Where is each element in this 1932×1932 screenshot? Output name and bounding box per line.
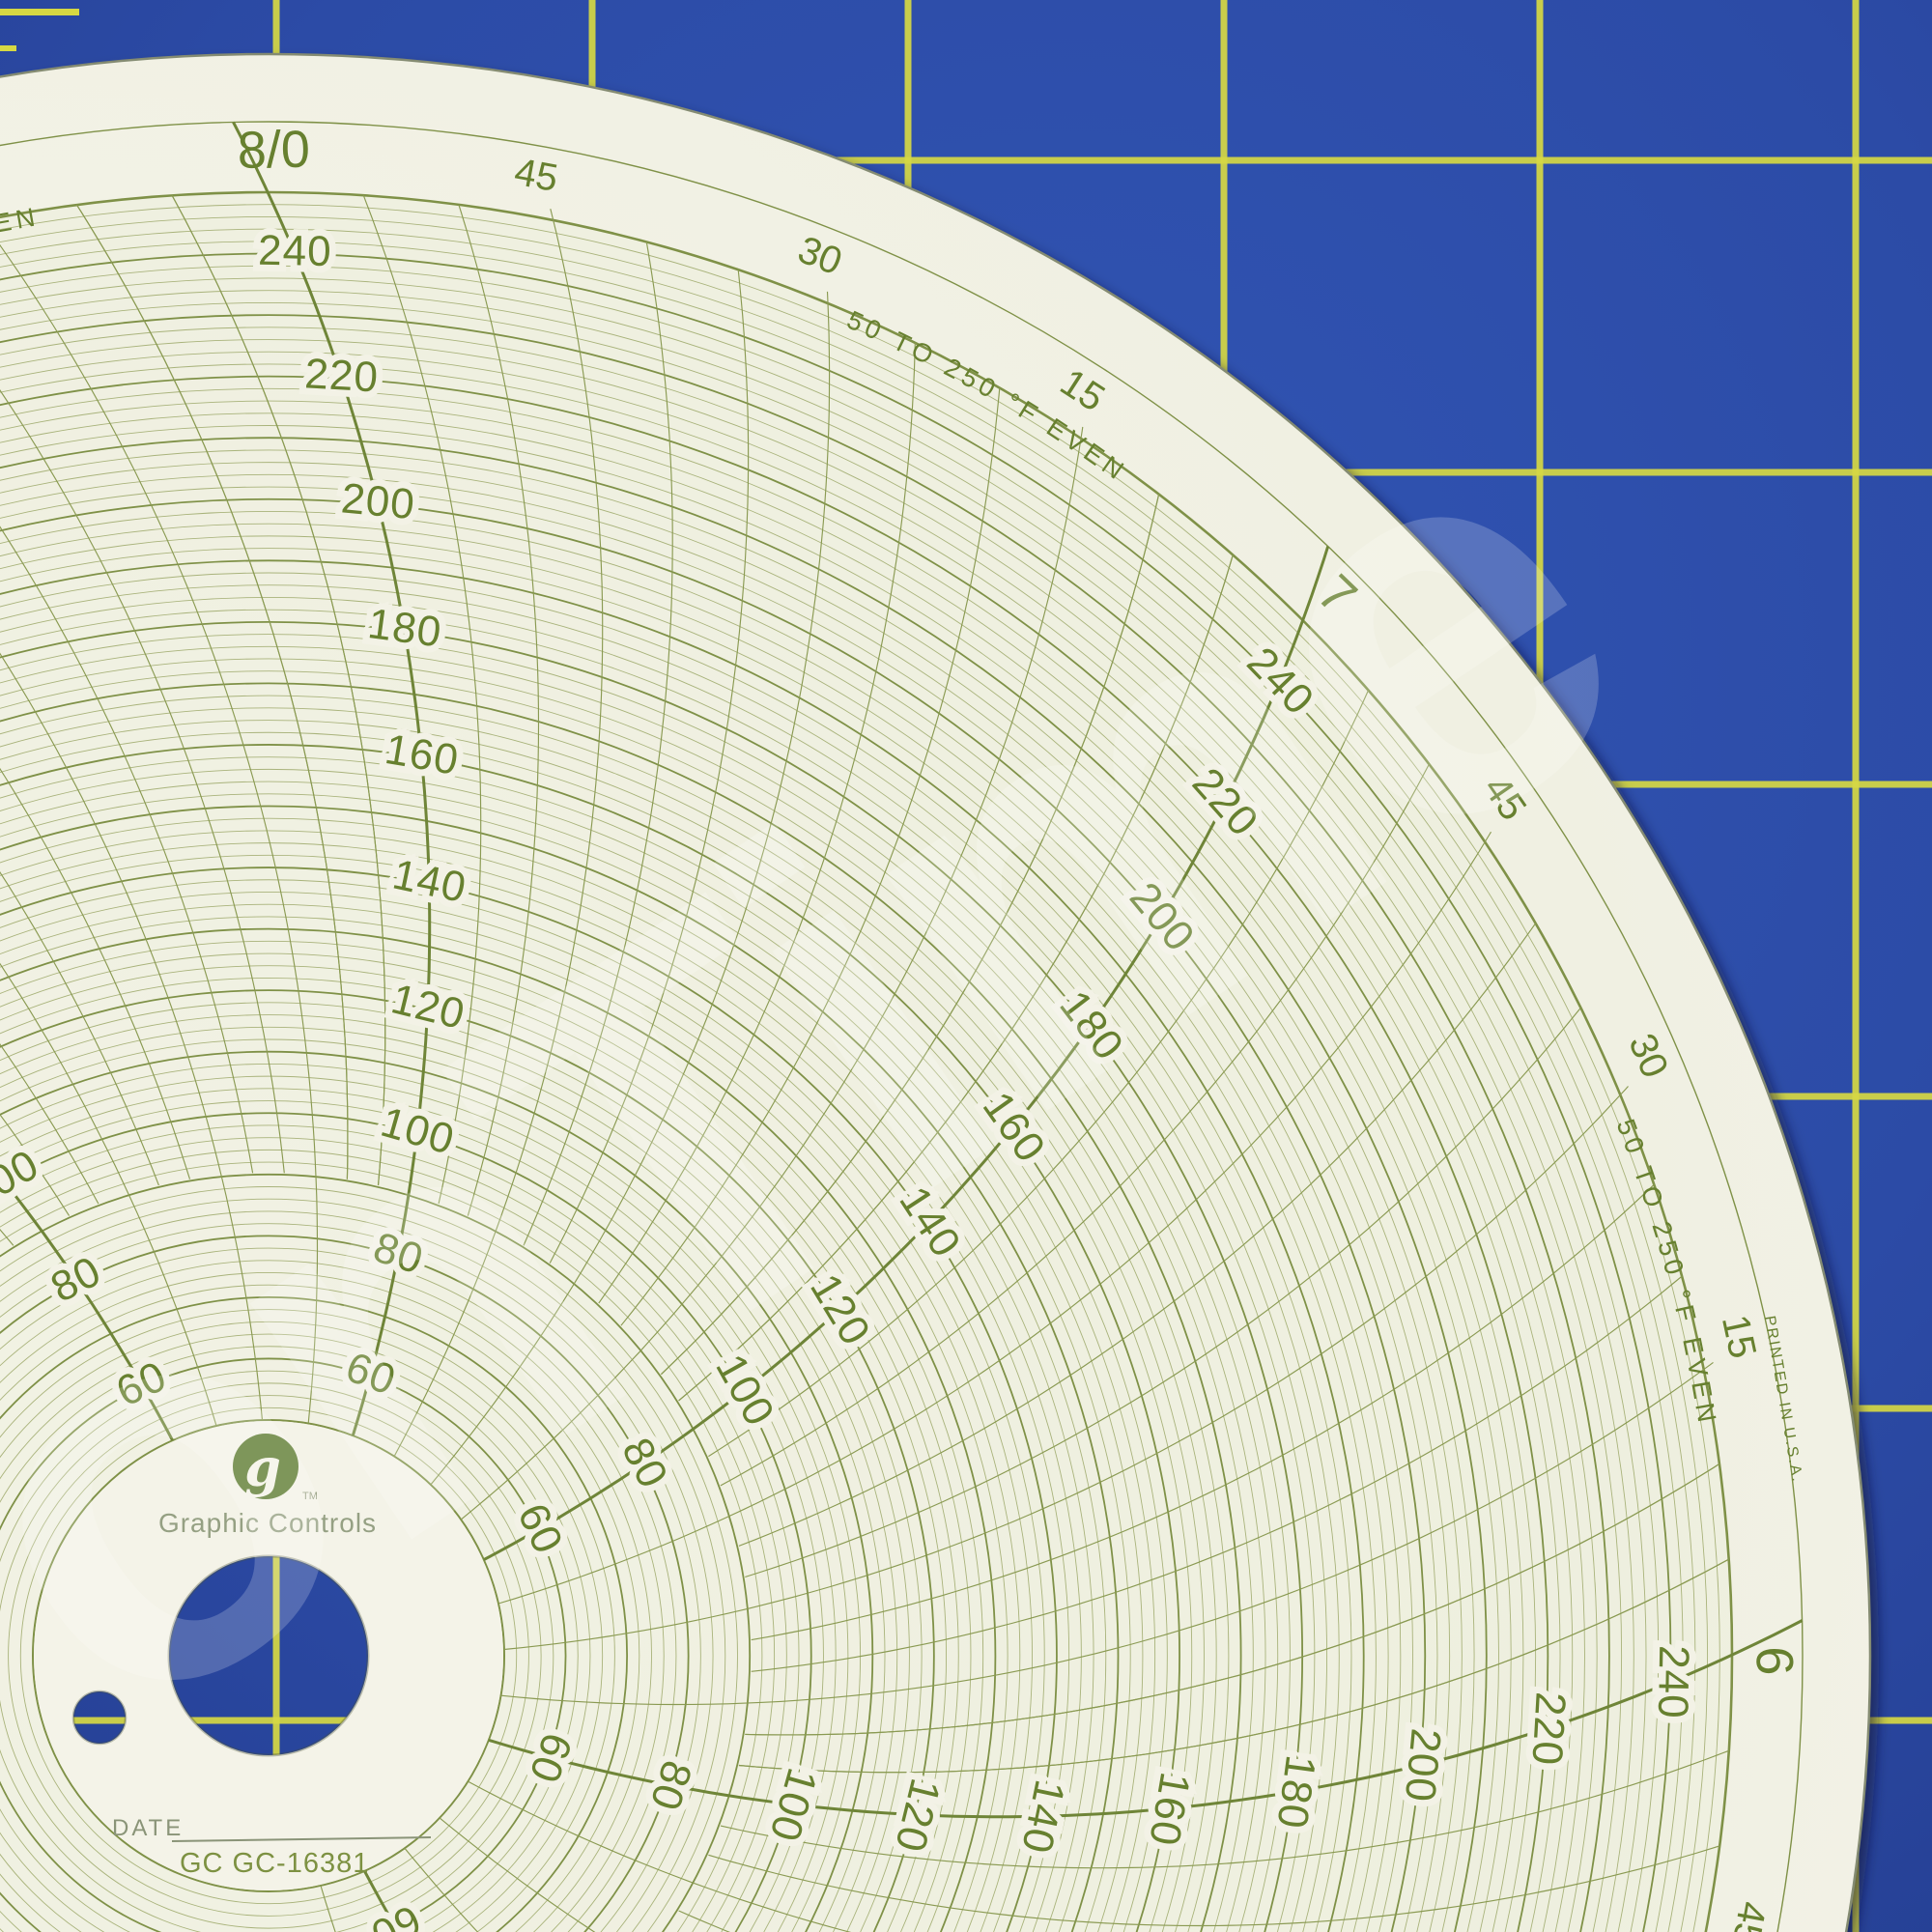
hour-label: 6 [1745, 1646, 1804, 1676]
temperature-label: 240 [1649, 1645, 1697, 1719]
temperature-label: 220 [1522, 1690, 1574, 1767]
part-number: GC GC-16381 [180, 1848, 369, 1879]
mat-ruler-tick [0, 9, 79, 15]
temperature-label: 200 [1396, 1726, 1450, 1804]
hour-label: 8/0 [237, 121, 310, 180]
minute-label: 15 [1714, 1311, 1764, 1362]
temperature-label: 200 [339, 474, 417, 528]
temperature-label: 180 [365, 600, 444, 657]
temperature-label: 220 [303, 350, 380, 401]
photo-of-circular-chart-on-cutting-mat: 1201008060240220200180160140120100806024… [0, 0, 1932, 1932]
mat-ruler-tick [0, 45, 16, 51]
temperature-label: 180 [1267, 1752, 1324, 1832]
minute-label: 45 [511, 151, 561, 200]
temperature-label: 240 [258, 227, 332, 275]
scene-svg: 1201008060240220200180160140120100806024… [0, 0, 1932, 1932]
